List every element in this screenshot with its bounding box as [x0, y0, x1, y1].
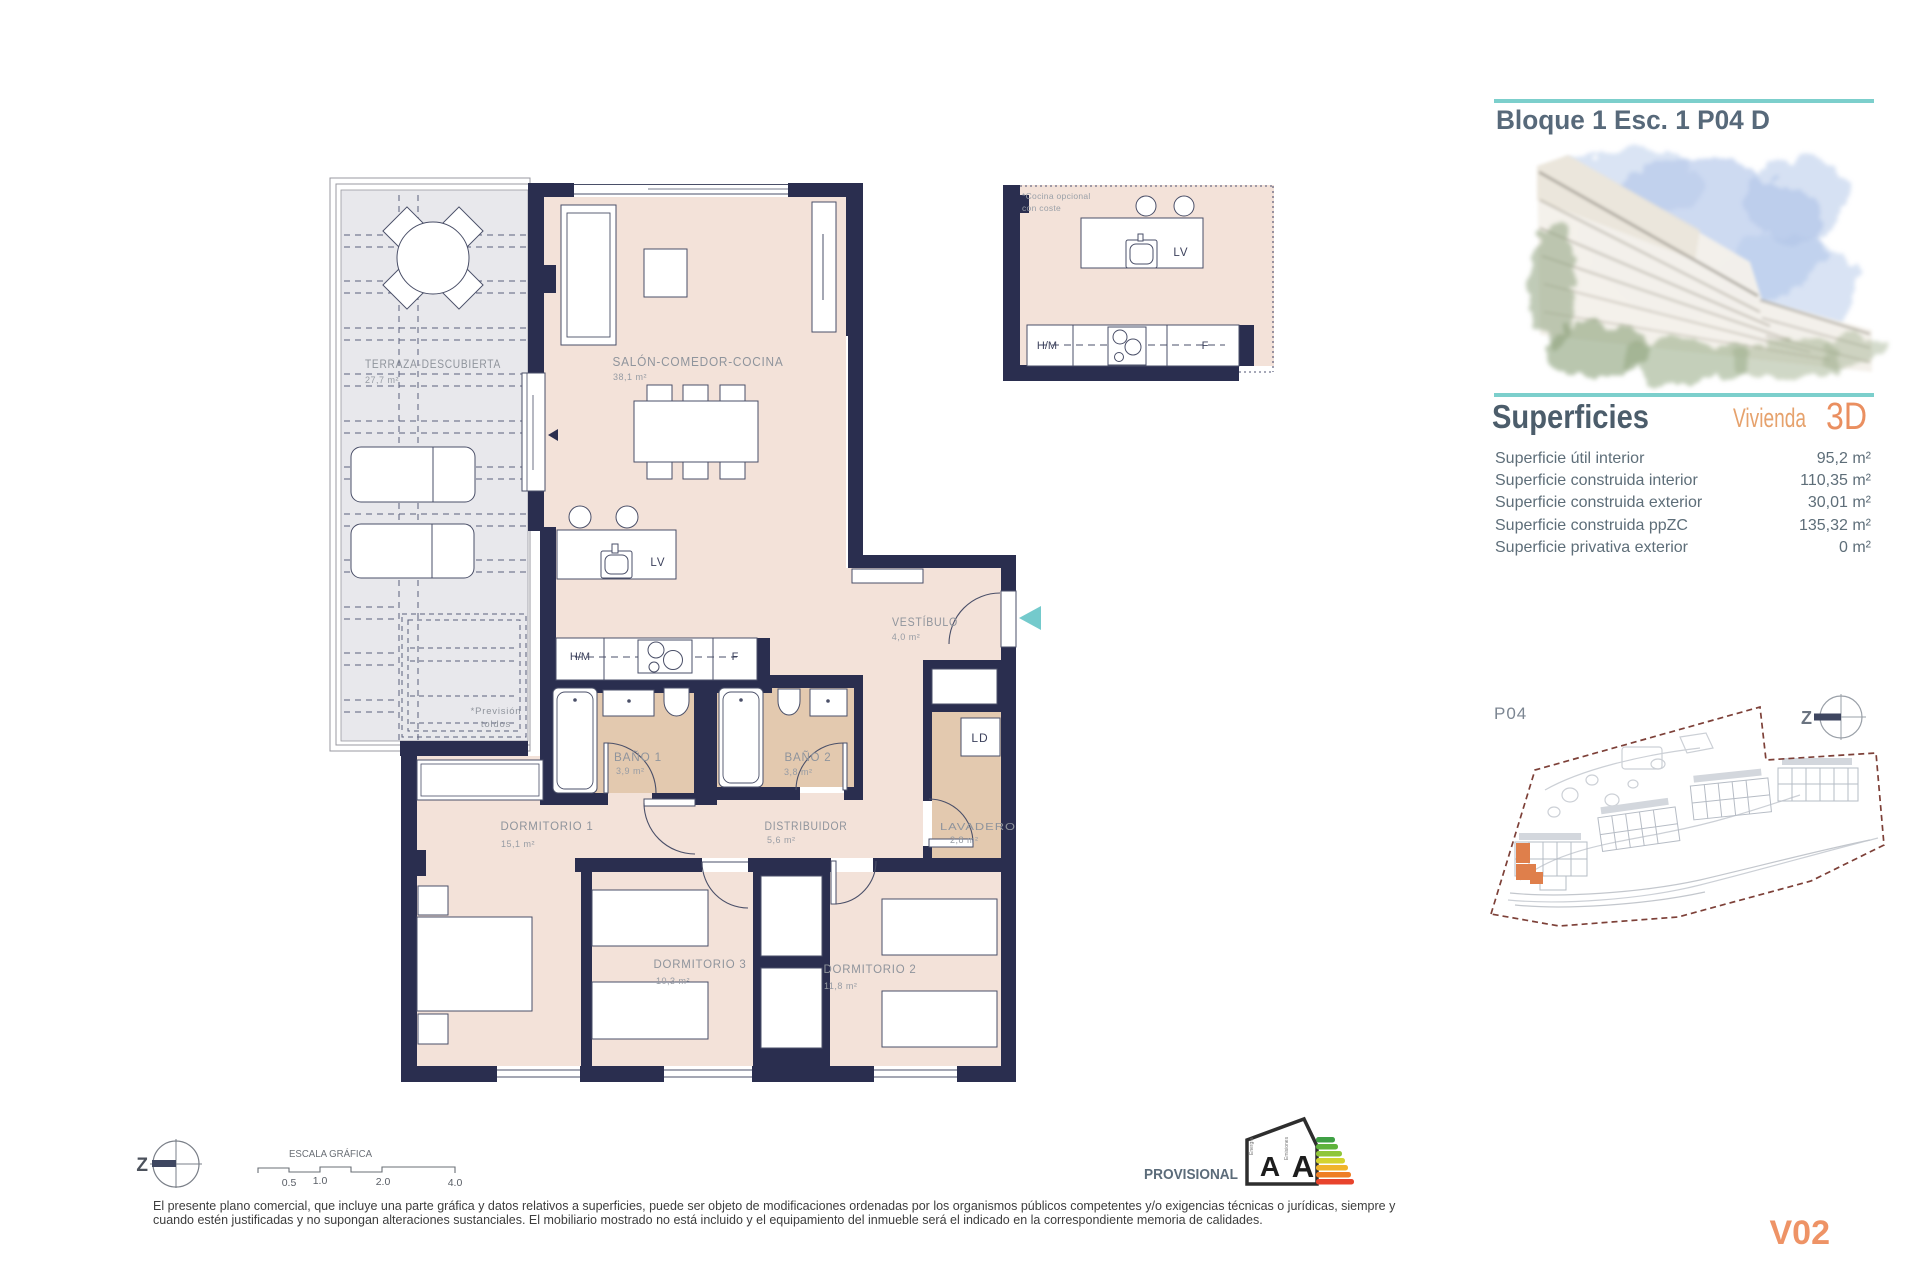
svg-text:F: F — [1202, 340, 1209, 352]
svg-text:toldos: toldos — [481, 719, 511, 730]
svg-text:H/M: H/M — [570, 651, 590, 663]
svg-text:4,0 m²: 4,0 m² — [892, 632, 921, 642]
svg-text:0 m²: 0 m² — [1839, 539, 1872, 556]
svg-text:PROVISIONAL: PROVISIONAL — [1144, 1167, 1238, 1183]
svg-text:Superficie privativa exterior: Superficie privativa exterior — [1495, 539, 1689, 556]
svg-text:LV: LV — [1173, 247, 1188, 259]
svg-text:3,8 m²: 3,8 m² — [784, 767, 813, 777]
svg-text:El presente plano comercial, q: El presente plano comercial, que incluye… — [153, 1199, 1396, 1213]
svg-text:110,35 m²: 110,35 m² — [1800, 472, 1872, 489]
svg-text:135,32 m²: 135,32 m² — [1799, 517, 1872, 534]
svg-text:A: A — [1260, 1151, 1280, 1182]
svg-text:27,7 m²: 27,7 m² — [365, 375, 399, 385]
svg-text:H/M: H/M — [1037, 340, 1057, 352]
svg-text:0.5: 0.5 — [282, 1177, 297, 1189]
svg-text:10,3 m²: 10,3 m² — [656, 976, 690, 986]
svg-text:con coste: con coste — [1022, 203, 1061, 213]
svg-text:DORMITORIO 3: DORMITORIO 3 — [654, 957, 747, 971]
svg-text:Superficie construida exterior: Superficie construida exterior — [1495, 494, 1703, 511]
svg-text:Emisiones: Emisiones — [1284, 1136, 1290, 1160]
svg-text:ESCALA GRÁFICA: ESCALA GRÁFICA — [289, 1147, 372, 1160]
svg-text:38,1 m²: 38,1 m² — [613, 372, 647, 382]
svg-text:1.0: 1.0 — [313, 1175, 328, 1187]
svg-text:3D: 3D — [1826, 396, 1867, 438]
svg-text:P04: P04 — [1494, 704, 1527, 723]
svg-text:Energía: Energía — [1249, 1137, 1255, 1155]
svg-text:BAÑO 1: BAÑO 1 — [614, 751, 662, 764]
svg-text:Superficies: Superficies — [1492, 398, 1649, 435]
svg-text:LD: LD — [971, 731, 988, 745]
svg-text:11,8 m²: 11,8 m² — [824, 981, 857, 991]
svg-text:Superficie útil interior: Superficie útil interior — [1495, 450, 1645, 467]
svg-text:*Previsión: *Previsión — [471, 706, 522, 717]
svg-text:cuando estén justificadas y no: cuando estén justificadas y no supongan … — [153, 1213, 1263, 1227]
svg-text:*Cocina opcional: *Cocina opcional — [1022, 191, 1091, 201]
svg-text:15,1 m²: 15,1 m² — [501, 839, 535, 849]
svg-text:A: A — [1292, 1149, 1314, 1184]
svg-text:V02: V02 — [1770, 1214, 1831, 1252]
svg-text:BAÑO 2: BAÑO 2 — [785, 751, 832, 764]
svg-text:DORMITORIO 2: DORMITORIO 2 — [824, 962, 917, 976]
svg-text:LV: LV — [650, 557, 665, 569]
svg-text:Vivienda: Vivienda — [1733, 403, 1807, 433]
svg-text:3,9 m²: 3,9 m² — [616, 766, 645, 776]
svg-text:Z: Z — [1801, 708, 1812, 728]
svg-text:VESTÍBULO: VESTÍBULO — [892, 616, 958, 629]
svg-text:DISTRIBUIDOR: DISTRIBUIDOR — [765, 821, 848, 833]
svg-text:5,6 m²: 5,6 m² — [767, 835, 796, 845]
svg-text:4.0: 4.0 — [448, 1177, 463, 1189]
svg-text:Z: Z — [136, 1155, 148, 1176]
svg-text:DORMITORIO 1: DORMITORIO 1 — [501, 819, 594, 833]
svg-text:Superficie construida ppZC: Superficie construida ppZC — [1495, 517, 1688, 534]
svg-text:F: F — [732, 651, 739, 663]
svg-text:2.0: 2.0 — [376, 1176, 391, 1188]
svg-text:95,2 m²: 95,2 m² — [1817, 450, 1872, 467]
svg-text:2,8 m²: 2,8 m² — [950, 835, 979, 845]
svg-text:TERRAZA-DESCUBIERTA: TERRAZA-DESCUBIERTA — [365, 359, 501, 371]
svg-text:Superficie construida interior: Superficie construida interior — [1495, 472, 1698, 489]
svg-text:LAVADERO: LAVADERO — [940, 821, 1016, 833]
svg-text:SALÓN-COMEDOR-COCINA: SALÓN-COMEDOR-COCINA — [613, 354, 784, 369]
svg-text:Bloque 1 Esc. 1 P04 D: Bloque 1 Esc. 1 P04 D — [1496, 105, 1770, 135]
svg-text:30,01 m²: 30,01 m² — [1808, 494, 1872, 511]
